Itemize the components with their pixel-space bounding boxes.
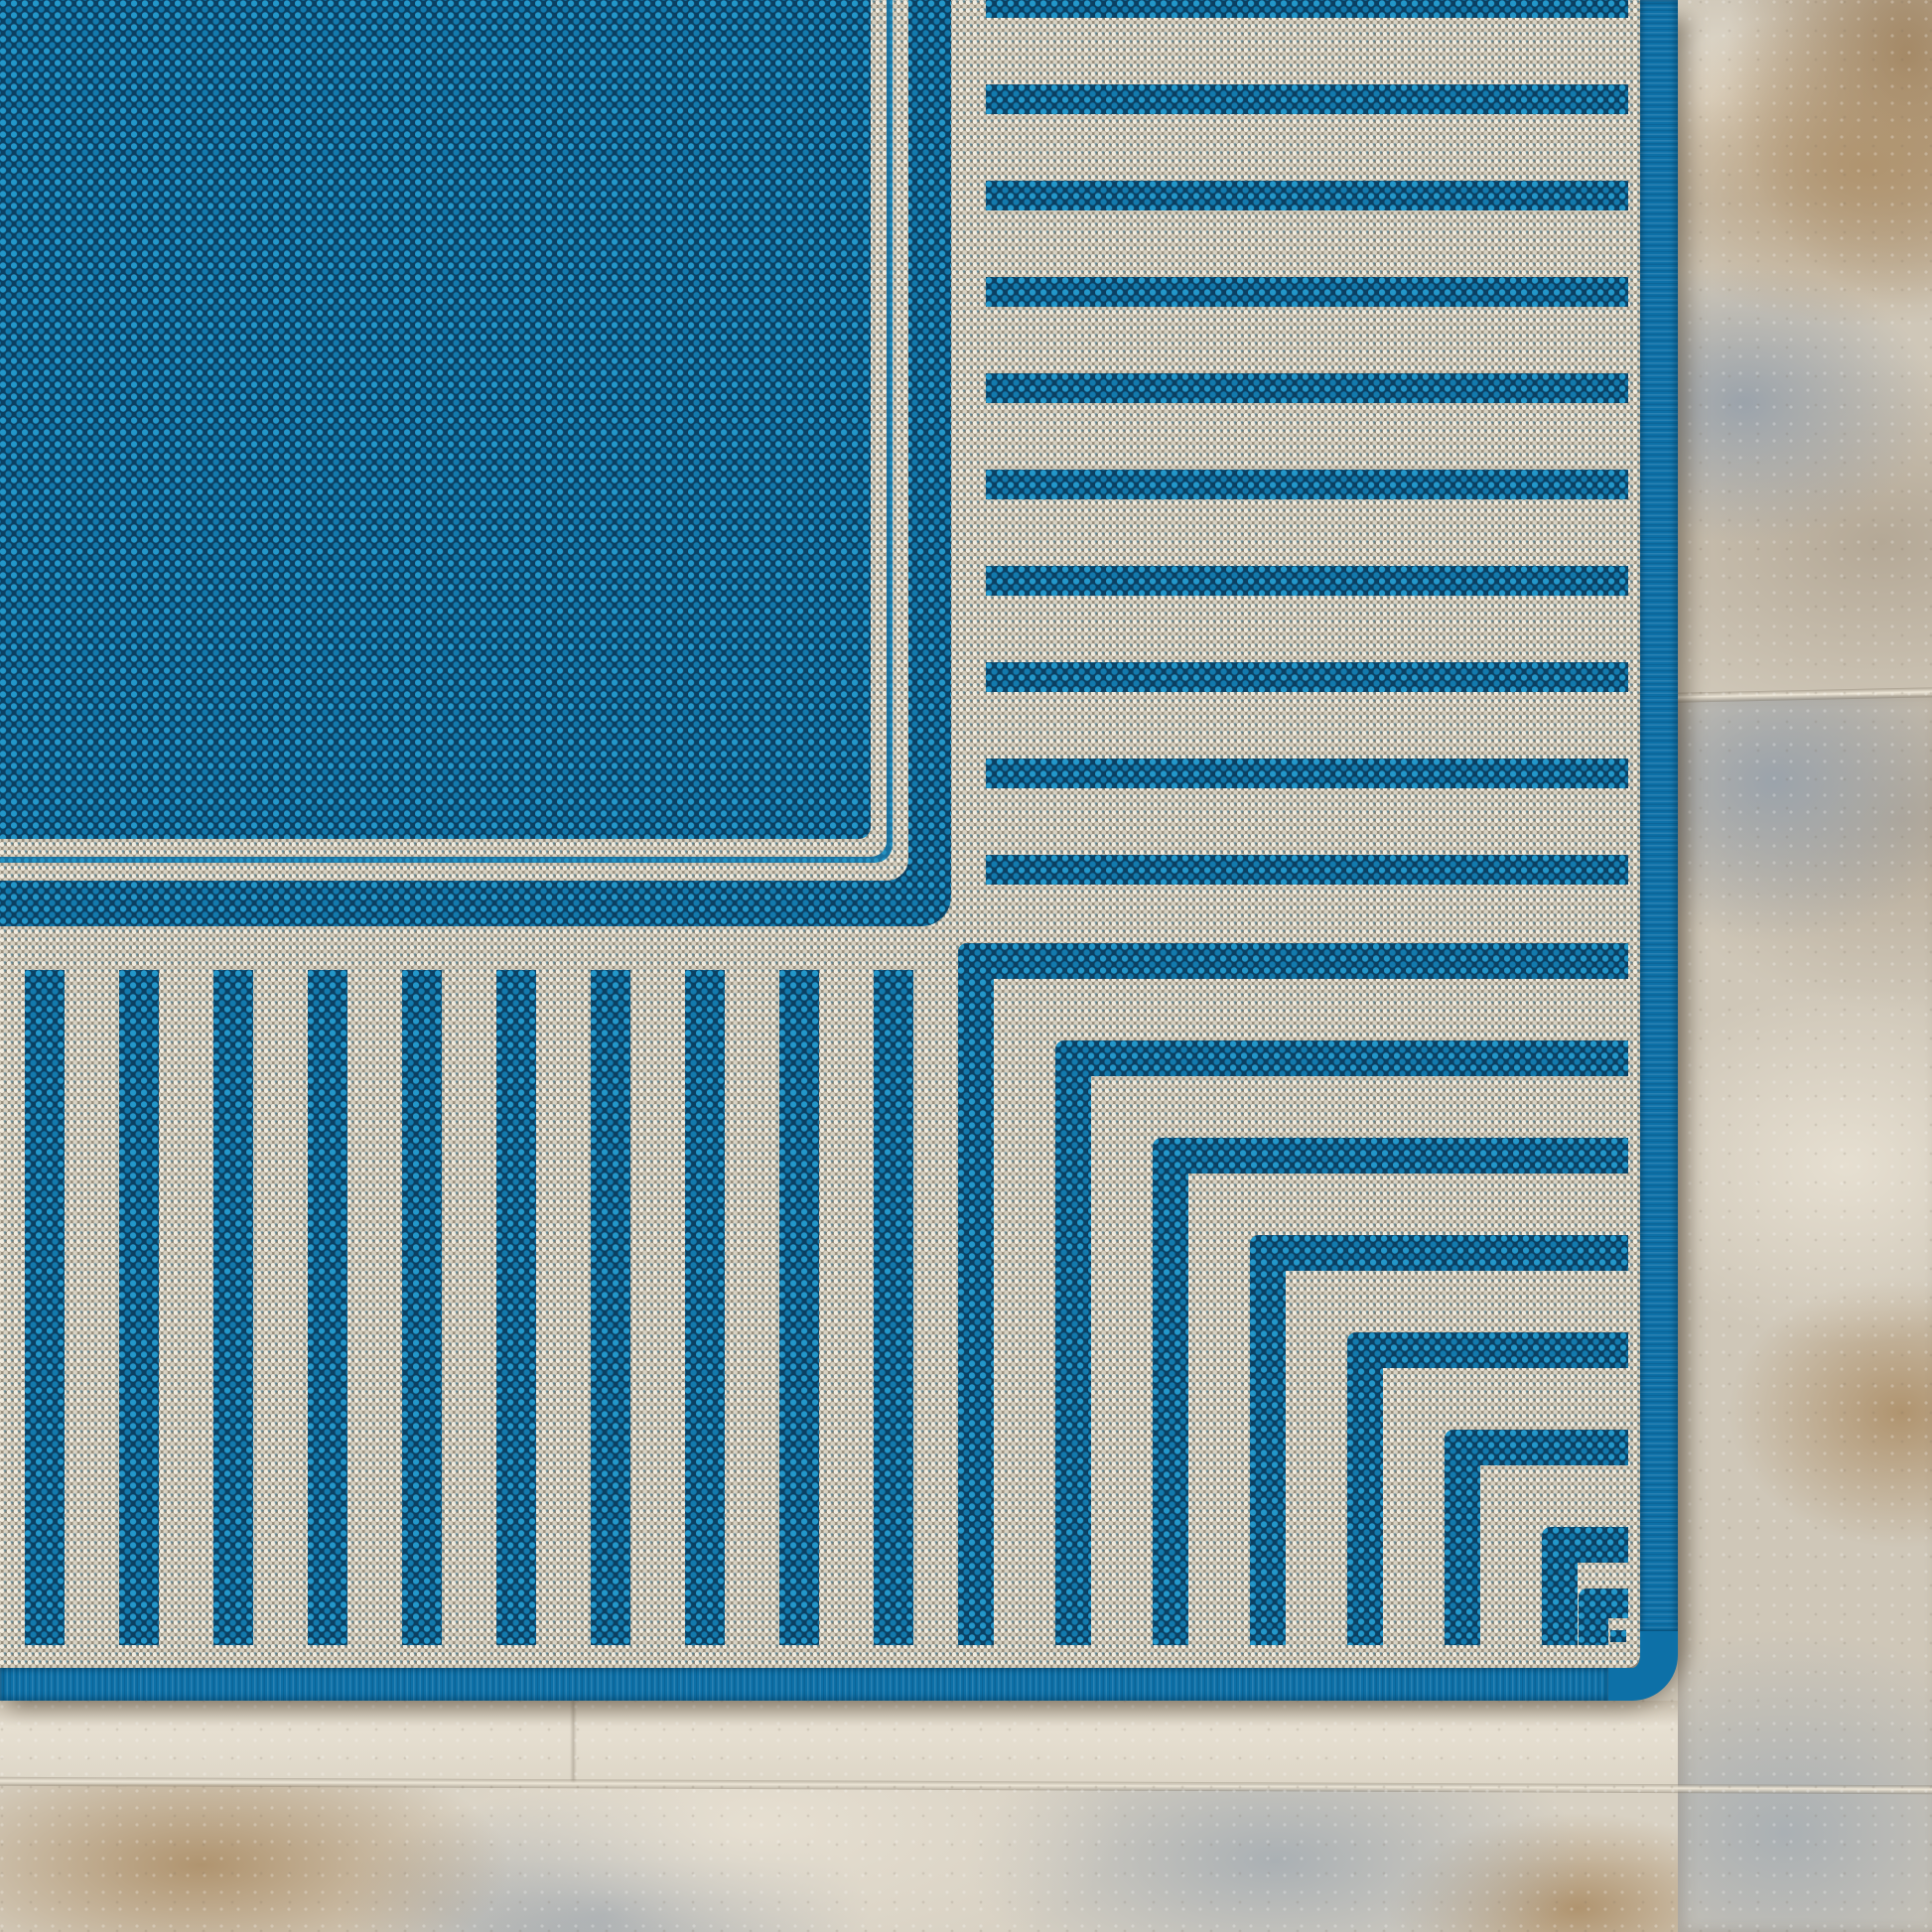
rug: [0, 0, 1678, 1701]
binding-right-texture: [1640, 0, 1678, 1631]
tile-joint-vertical: [570, 1701, 577, 1784]
binding: [0, 0, 1678, 1701]
tile-bottom-strip: [0, 1701, 1678, 1932]
grout-line-bottom: [0, 1777, 1932, 1795]
tile-edge-strip: [0, 1701, 1678, 1784]
tile-bottom-face: [0, 1784, 1678, 1932]
tile-right-column: [1678, 0, 1932, 1932]
binding-bottom-texture: [0, 1668, 1608, 1701]
tile-right-lower: [1678, 695, 1932, 1932]
grout-line-right: [1674, 687, 1932, 703]
scene: [0, 0, 1932, 1932]
tile-right-upper: [1678, 0, 1932, 695]
